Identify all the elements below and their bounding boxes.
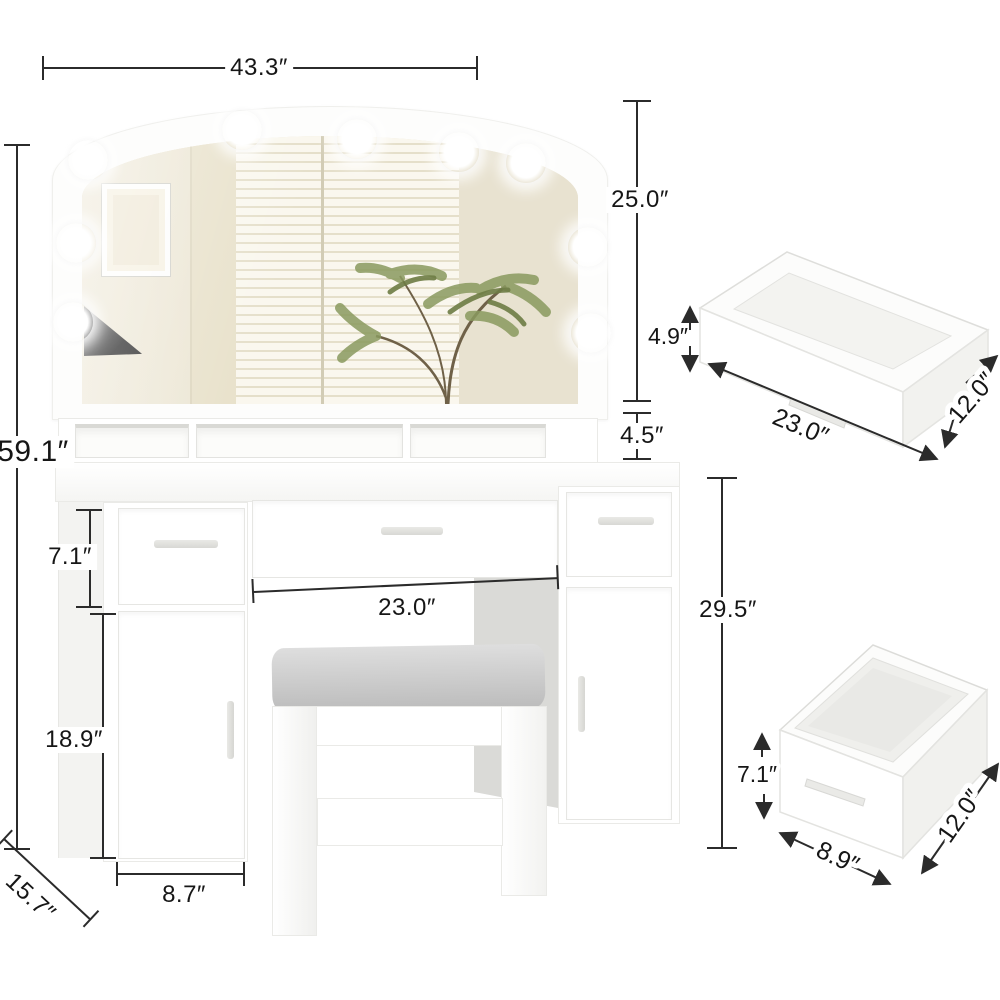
wide-drawer-illustration — [700, 252, 988, 447]
drawer-details-overlay: 4.9″ 23.0″ 12.0″ 7.1″ 8.9″ 12.0″ — [0, 0, 1000, 1000]
dim-label-deep-drawer-width: 8.9″ — [812, 836, 863, 880]
product-dimension-diagram: 43.3″ 59.1″ 25.0″ 4.5″ 7.1″ 18.9″ — [0, 0, 1000, 1000]
dim-label-wide-drawer-height: 4.9″ — [648, 323, 688, 349]
dim-label-deep-drawer-height: 7.1″ — [737, 761, 777, 787]
